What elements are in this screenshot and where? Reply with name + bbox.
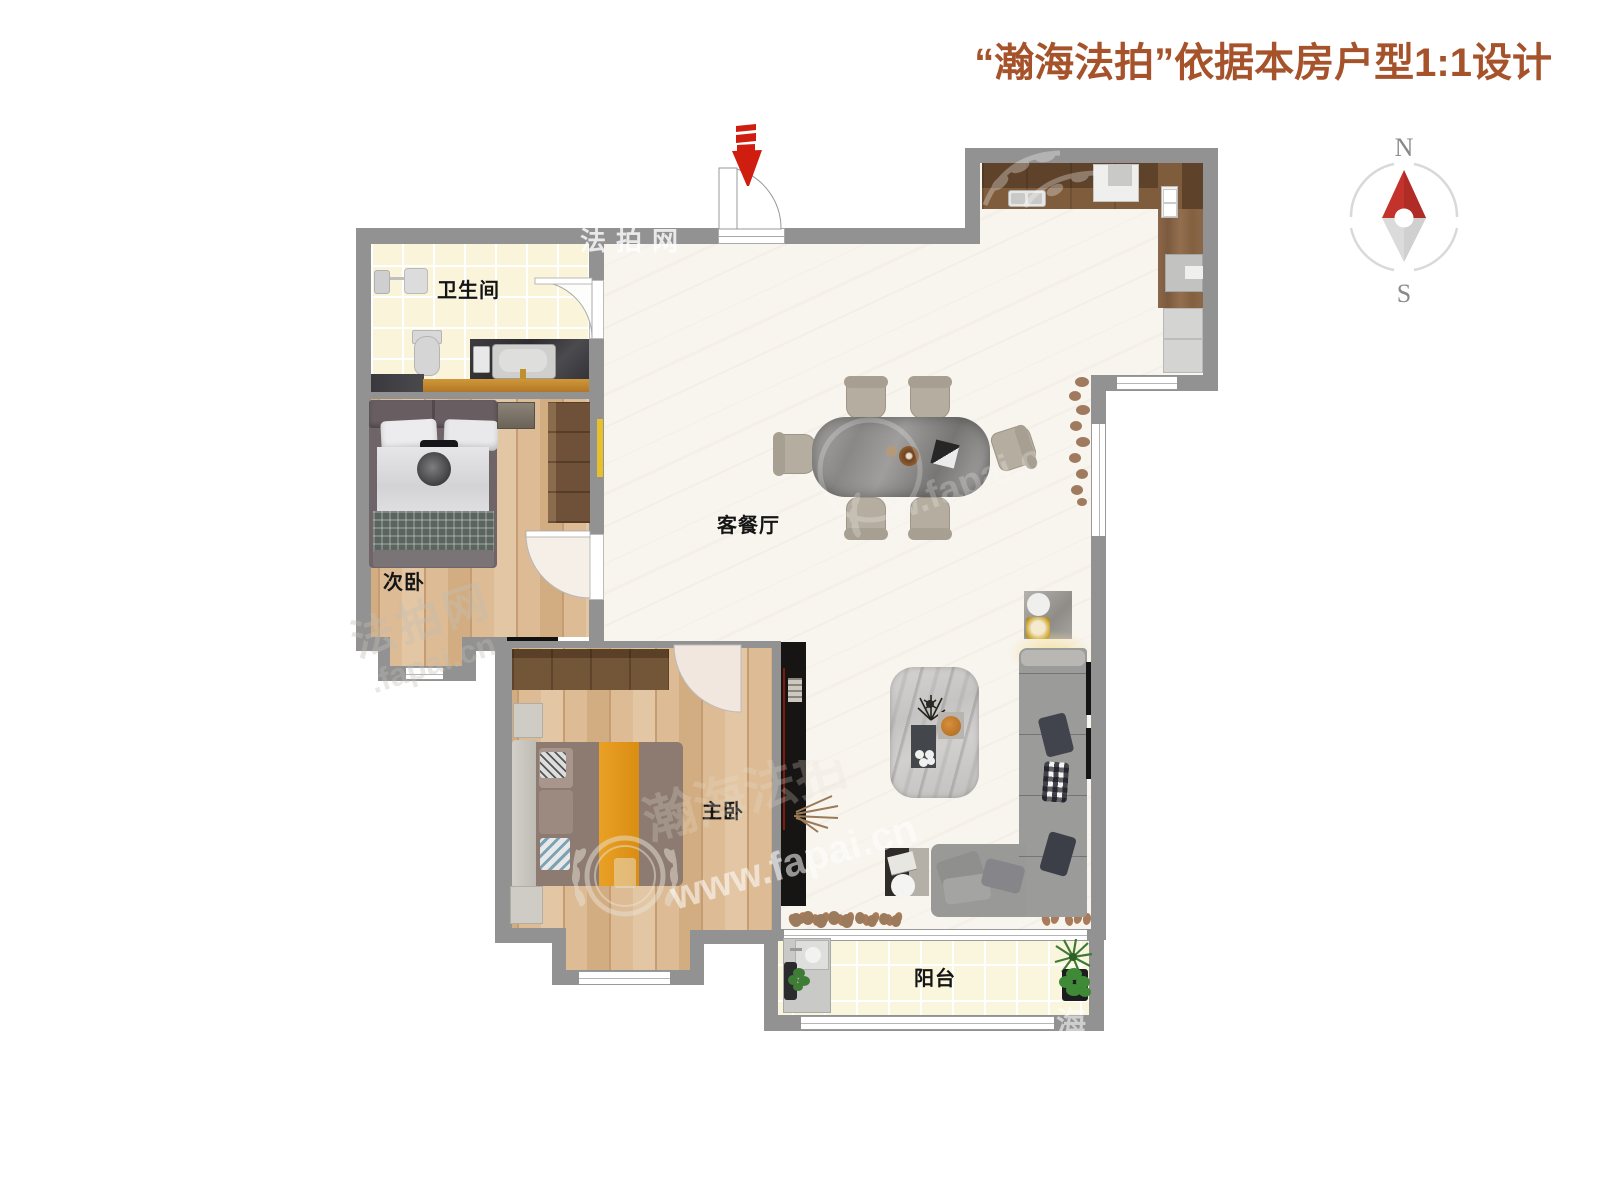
svg-text:w.fapai.c: w.fapai.c bbox=[883, 437, 1048, 531]
svg-text:S: S bbox=[1397, 279, 1411, 305]
svg-text:N: N bbox=[1395, 133, 1414, 162]
